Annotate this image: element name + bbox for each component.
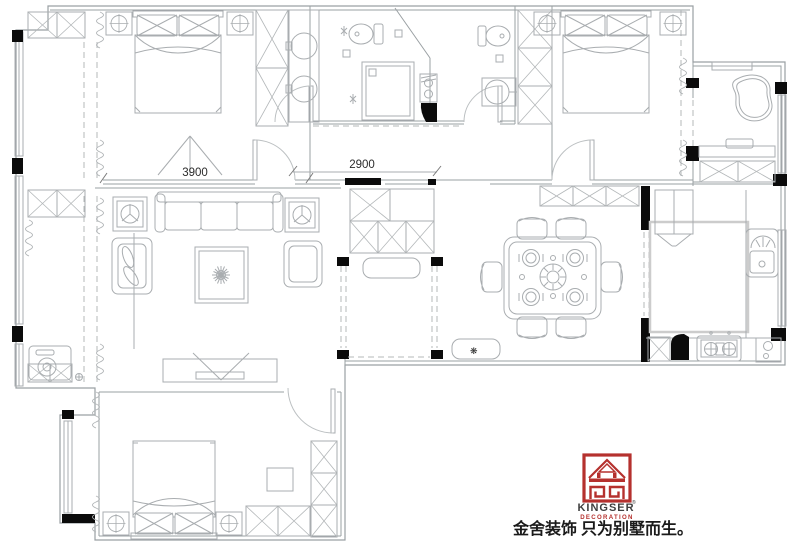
faucet-icon (341, 26, 347, 36)
counter-edge (646, 190, 781, 338)
floor-plan-canvas: ❋ (0, 0, 800, 557)
brand-logo: KINGSER ® DECORATION 金舍装饰 只为别墅而生。 (512, 455, 693, 538)
dining-chair (517, 218, 547, 240)
dim-bedroom-width: 3900 (182, 167, 208, 179)
stove (697, 332, 741, 361)
stool (267, 468, 293, 491)
dimension-3900: 3900 (100, 136, 313, 183)
dining-room (481, 218, 623, 339)
bedroom-top-right (534, 11, 686, 113)
faucet-icon (350, 94, 356, 104)
bed (131, 441, 217, 539)
place-setting (519, 250, 543, 267)
brand-name: KINGSER (577, 502, 634, 514)
windows (15, 32, 786, 513)
door-bedroom2 (552, 140, 594, 180)
bedroom-top-left (106, 11, 253, 113)
kidney-table (733, 75, 772, 121)
nightstand (227, 12, 253, 35)
wardrobes (28, 10, 775, 537)
door-bedroom3 (288, 388, 335, 433)
dining-chair (517, 317, 547, 339)
center-platter (540, 264, 566, 290)
shower-room (362, 62, 414, 120)
nightstand (106, 12, 132, 35)
dim-hall-width: 2900 (349, 159, 375, 171)
brand-slogan: 金舍装饰 只为别墅而生。 (512, 519, 693, 538)
nightstand (660, 12, 686, 35)
place-setting (519, 289, 543, 306)
sink (291, 33, 317, 59)
nightstand (216, 512, 242, 535)
bed (133, 11, 223, 113)
dining-chair (556, 317, 586, 339)
window-study-top (712, 62, 752, 70)
corner-unit (671, 334, 689, 360)
brand-subtitle: DECORATION (580, 514, 634, 521)
shoe-bench (363, 258, 420, 278)
place-setting (563, 289, 587, 306)
door-bedroom1 (253, 140, 295, 180)
armchair-left (112, 238, 152, 294)
basin-cabinet (420, 74, 437, 122)
study-room (699, 75, 775, 157)
side-table-lamp (113, 197, 147, 231)
kitchen-sink (746, 229, 778, 277)
living-room (112, 192, 322, 382)
toilet (478, 26, 510, 46)
walls (16, 6, 785, 540)
dining-chair (556, 218, 586, 240)
toilet (349, 24, 383, 44)
floor-plan-svg: ❋ (0, 0, 800, 557)
door-bathroom1 (275, 86, 313, 122)
window-bay-bedroom3 (64, 421, 72, 513)
side-table-lamp (285, 198, 319, 232)
nightstand (534, 12, 560, 35)
dining-chair (481, 262, 503, 292)
sink (485, 80, 509, 104)
balcony-laundry (29, 346, 83, 381)
sofa (155, 192, 283, 232)
kitchen (646, 190, 781, 362)
dimension-2900: 2900 (289, 159, 441, 176)
entry-bench-glyph: ❋ (470, 346, 478, 356)
logo-glyph (589, 460, 625, 499)
armchair-right (284, 241, 322, 287)
place-setting (563, 250, 587, 267)
nightstand (103, 512, 129, 535)
bedroom-bottom (103, 441, 293, 539)
structural-columns (12, 30, 787, 523)
registered-mark: ® (632, 499, 636, 506)
tv-cabinet (163, 353, 277, 382)
vanity-counter (289, 10, 319, 122)
coffee-table (195, 247, 248, 303)
fridge (655, 190, 693, 246)
bed (561, 11, 651, 113)
dining-chair (601, 262, 623, 292)
kitchen-floor-edge (650, 222, 748, 332)
base-cabinet (756, 338, 781, 362)
